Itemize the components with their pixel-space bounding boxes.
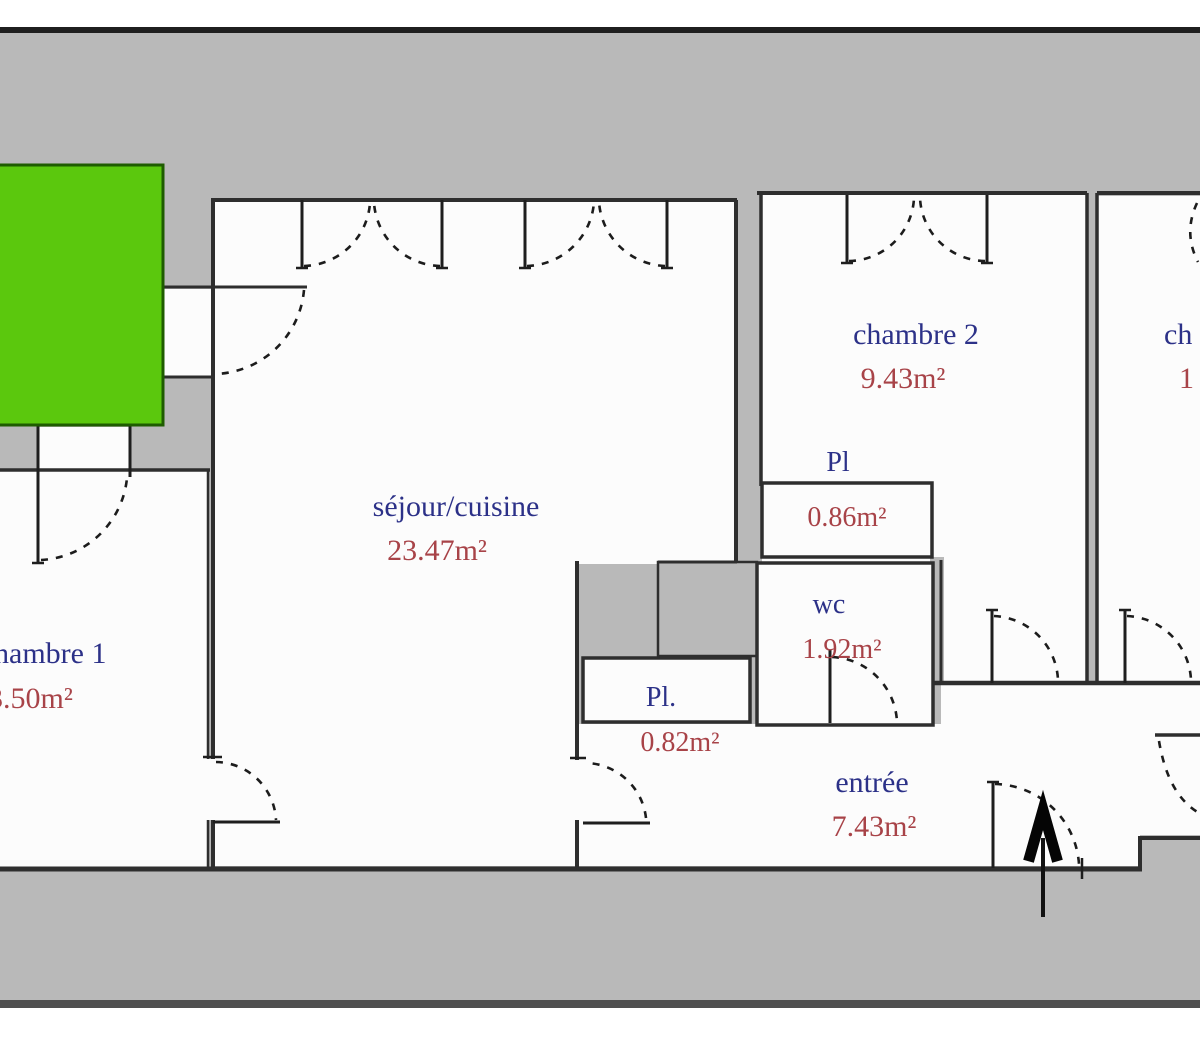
- entree-label: entrée: [835, 768, 908, 798]
- room-floor-chambre3: [1098, 196, 1200, 682]
- floor-plan-drawing: [0, 0, 1200, 1050]
- placard-haut-label: Pl: [826, 449, 849, 477]
- chambre2-area: 9.43m²: [861, 364, 946, 394]
- top-border-bar: [0, 27, 1200, 33]
- chambre1-window-opening: [38, 427, 130, 472]
- chambre1-label: hambre 1: [0, 639, 106, 669]
- placard-bas-area: 0.82m²: [640, 729, 719, 757]
- entree-area: 7.43m²: [832, 812, 917, 842]
- sejour-area: 23.47m²: [387, 536, 487, 566]
- wc-area: 1.92m²: [802, 636, 881, 664]
- sejour-label: séjour/cuisine: [373, 492, 540, 522]
- room-floor-sejour-lower: [214, 560, 576, 866]
- interior-wall-block: [658, 562, 757, 656]
- entree-right-passage: [1090, 684, 1200, 835]
- chambre2-label: chambre 2: [853, 320, 979, 350]
- entree-upper-passage: [941, 684, 1090, 726]
- wc-label: wc: [813, 591, 846, 619]
- balcony: [0, 165, 163, 425]
- placard-bas-label: Pl.: [646, 684, 676, 712]
- chambre3-area: 1: [1179, 364, 1194, 394]
- balcony-door-passage: [163, 289, 212, 376]
- placard-haut-area: 0.86m²: [807, 504, 886, 532]
- chambre1-area: 3.50m²: [0, 684, 73, 714]
- floor-plan-canvas: hambre 1 3.50m² séjour/cuisine 23.47m² c…: [0, 0, 1200, 1050]
- bottom-border-bar: [0, 1000, 1200, 1008]
- room-floors: [0, 195, 1200, 868]
- chambre3-label: ch: [1164, 320, 1192, 350]
